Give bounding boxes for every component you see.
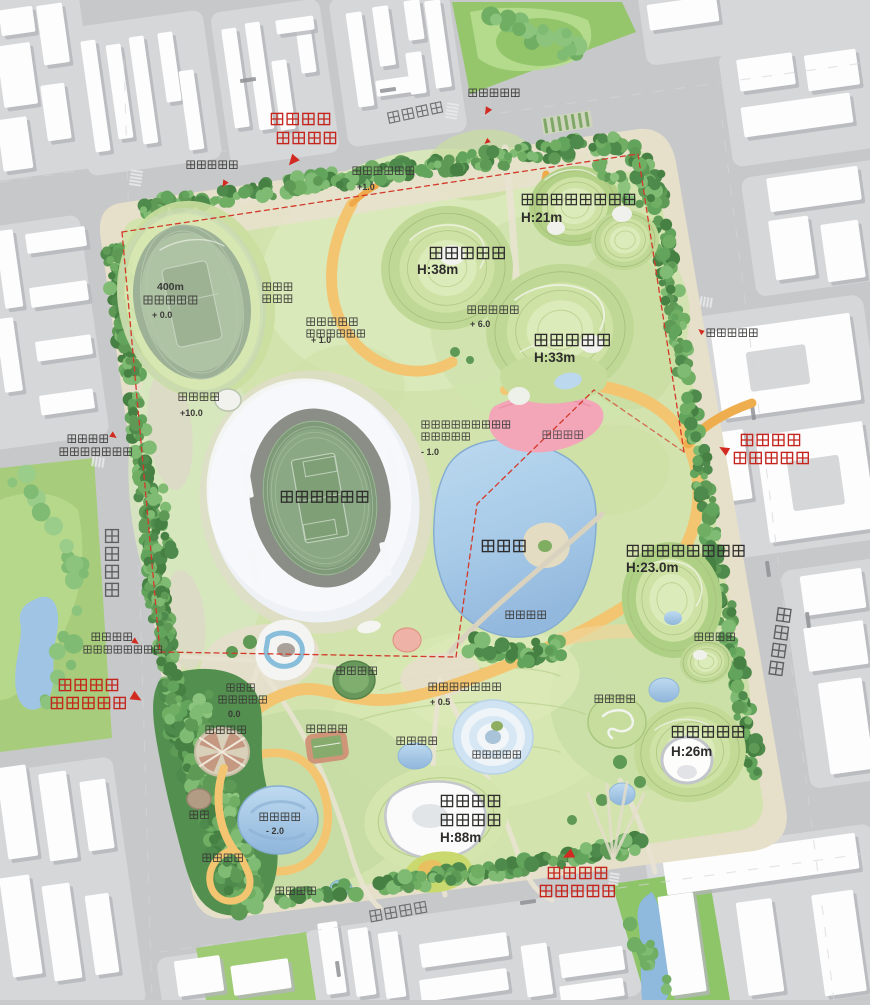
svg-text:H:21m: H:21m bbox=[521, 210, 562, 225]
svg-text:+ 6.0: + 6.0 bbox=[470, 319, 490, 329]
svg-text:H:33m: H:33m bbox=[534, 350, 575, 365]
svg-text:+ 0.0: + 0.0 bbox=[152, 310, 172, 320]
svg-text:+ 1.0: + 1.0 bbox=[311, 335, 331, 345]
svg-text:400m: 400m bbox=[157, 281, 184, 293]
svg-text:+10.0: +10.0 bbox=[180, 408, 203, 418]
svg-text:0.0: 0.0 bbox=[228, 709, 241, 719]
svg-text:+1.0: +1.0 bbox=[357, 182, 375, 192]
svg-text:H:26m: H:26m bbox=[671, 744, 712, 759]
svg-text:- 2.0: - 2.0 bbox=[266, 826, 284, 836]
svg-text:H:38m: H:38m bbox=[417, 262, 458, 277]
svg-text:H:23.0m: H:23.0m bbox=[626, 560, 679, 575]
svg-text:+ 0.5: + 0.5 bbox=[430, 697, 450, 707]
svg-text:H:88m: H:88m bbox=[440, 830, 481, 845]
svg-text:- 1.0: - 1.0 bbox=[421, 447, 439, 457]
